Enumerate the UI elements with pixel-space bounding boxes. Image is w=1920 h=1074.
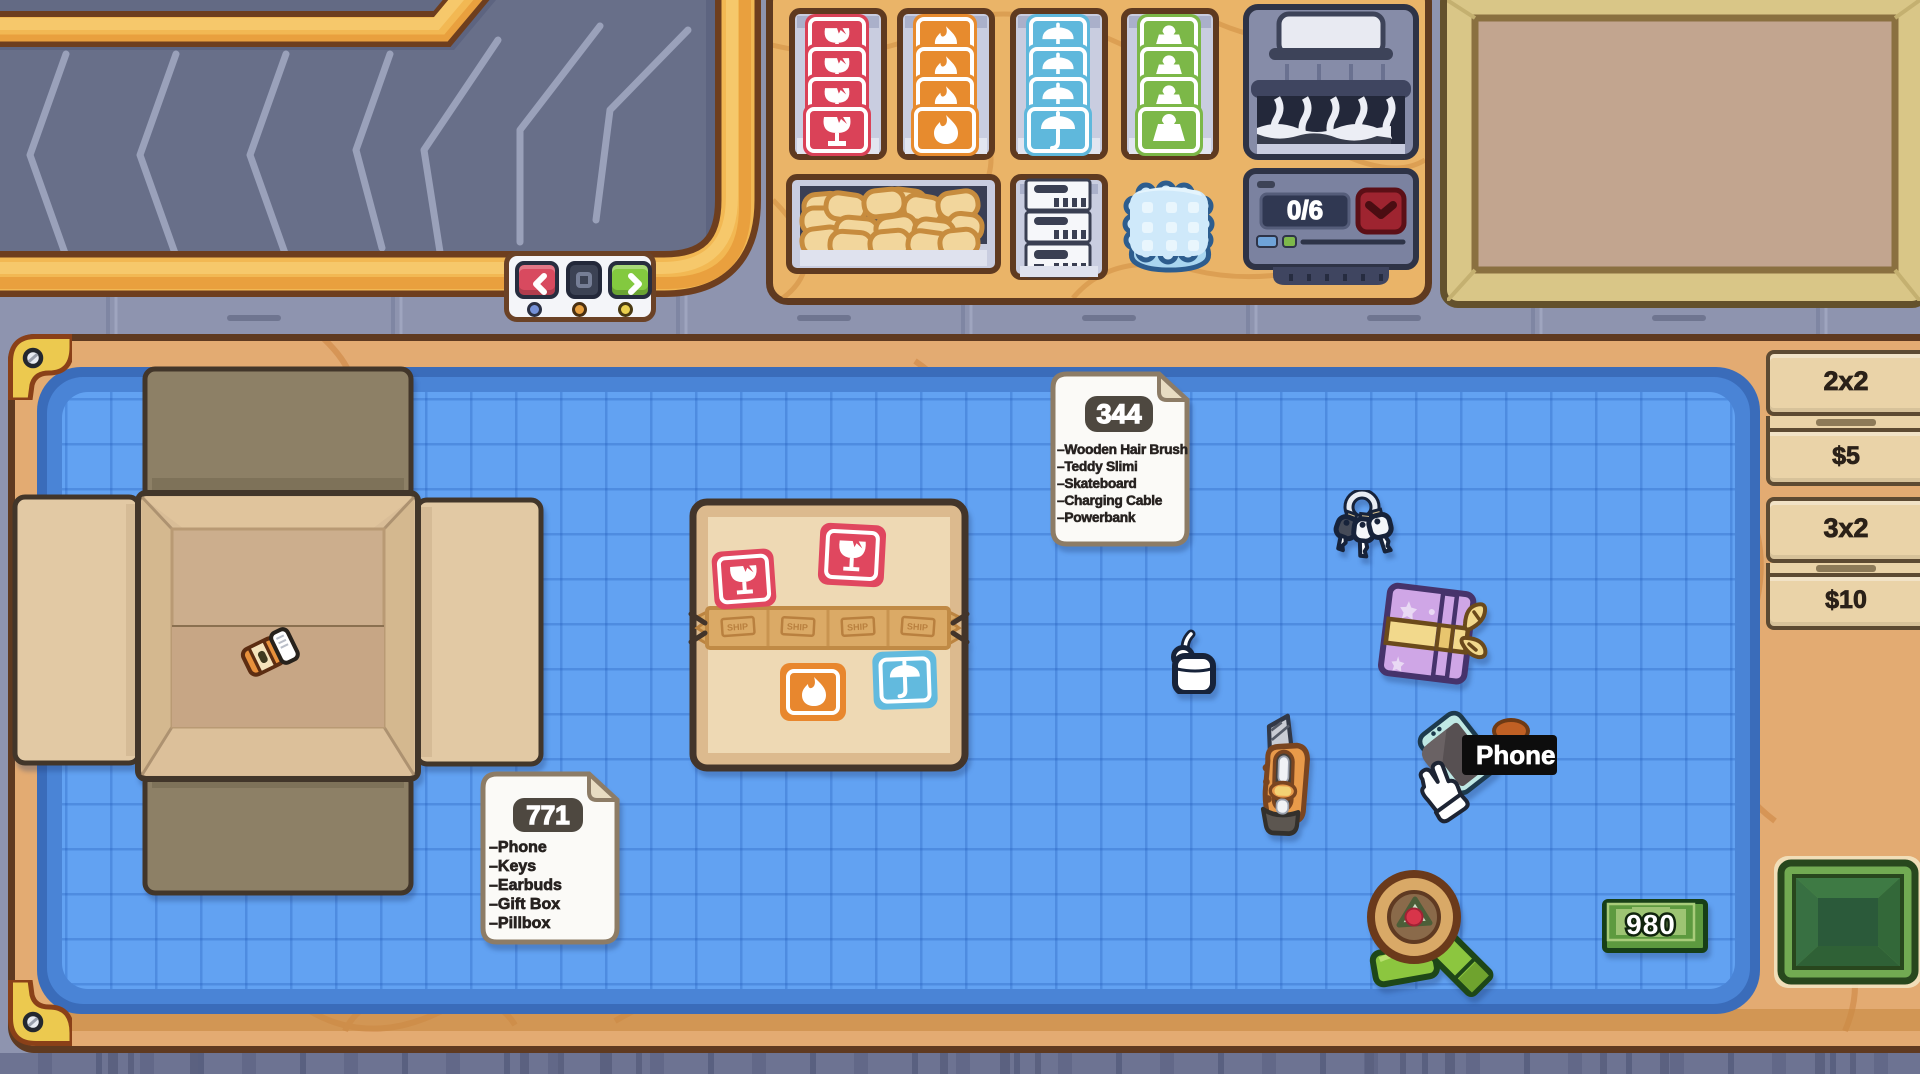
svg-text:980: 980	[1626, 909, 1676, 940]
svg-text:0/6: 0/6	[1287, 195, 1323, 225]
svg-text:–Earbuds: –Earbuds	[489, 877, 562, 894]
svg-text:–Teddy Slimi: –Teddy Slimi	[1057, 459, 1137, 474]
svg-text:SHIP: SHIP	[787, 621, 809, 632]
svg-text:–Powerbank: –Powerbank	[1057, 510, 1136, 525]
svg-text:–Phone: –Phone	[489, 839, 547, 856]
svg-text:–Skateboard: –Skateboard	[1057, 476, 1137, 491]
svg-text:SHIP: SHIP	[847, 621, 869, 632]
svg-text:–Keys: –Keys	[489, 858, 536, 875]
svg-text:–Charging Cable: –Charging Cable	[1057, 493, 1163, 508]
svg-text:SHIP: SHIP	[727, 621, 749, 632]
svg-text:344: 344	[1096, 399, 1141, 429]
svg-text:771: 771	[526, 800, 569, 830]
svg-text:–Wooden Hair Brush: –Wooden Hair Brush	[1057, 442, 1188, 457]
svg-text:–Pillbox: –Pillbox	[489, 915, 550, 932]
svg-text:–Gift Box: –Gift Box	[489, 896, 560, 913]
svg-text:SHIP: SHIP	[907, 621, 929, 632]
